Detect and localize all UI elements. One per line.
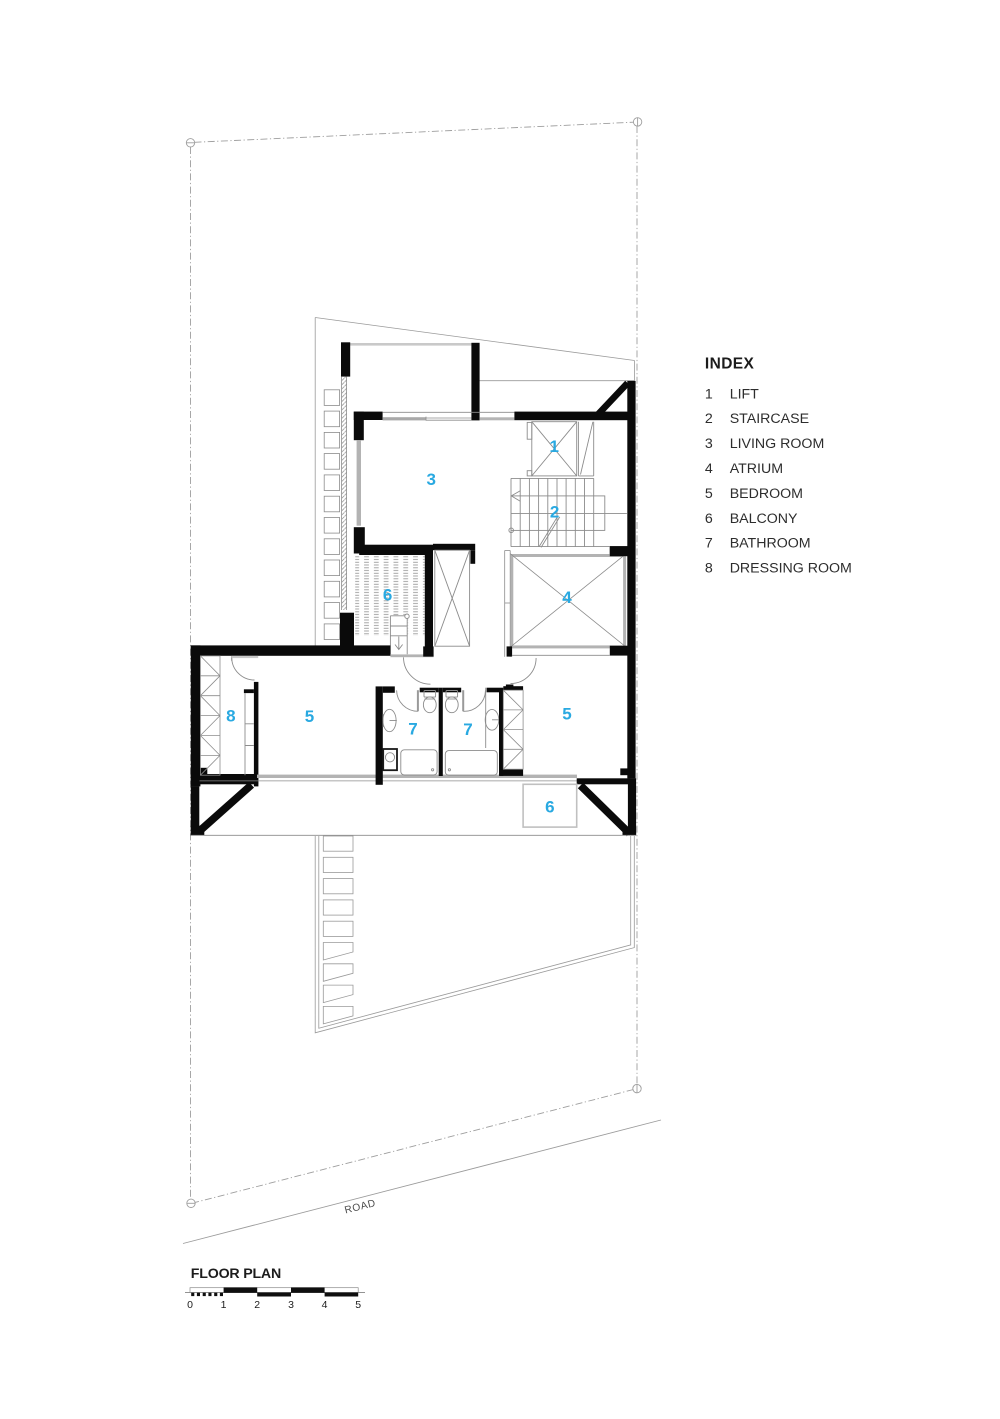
svg-text:6: 6 <box>383 586 392 605</box>
svg-text:4: 4 <box>322 1299 328 1311</box>
svg-text:1: 1 <box>549 437 558 456</box>
svg-text:7: 7 <box>705 536 713 552</box>
svg-text:7: 7 <box>408 719 417 738</box>
svg-text:1: 1 <box>221 1299 227 1311</box>
svg-text:2: 2 <box>705 411 713 427</box>
svg-text:5: 5 <box>355 1299 361 1311</box>
svg-text:5: 5 <box>562 705 571 724</box>
svg-text:FLOOR PLAN: FLOOR PLAN <box>191 1266 281 1282</box>
svg-text:6: 6 <box>705 511 713 527</box>
svg-text:3: 3 <box>705 436 713 452</box>
svg-text:7: 7 <box>463 720 472 739</box>
svg-text:0: 0 <box>187 1299 193 1311</box>
svg-text:STAIRCASE: STAIRCASE <box>730 411 809 427</box>
svg-text:5: 5 <box>305 707 314 726</box>
svg-text:INDEX: INDEX <box>705 356 755 373</box>
svg-text:1: 1 <box>705 386 713 402</box>
svg-text:2: 2 <box>550 503 559 522</box>
svg-text:3: 3 <box>288 1299 294 1311</box>
svg-text:4: 4 <box>705 461 713 477</box>
svg-text:5: 5 <box>705 486 713 502</box>
svg-text:BEDROOM: BEDROOM <box>730 486 803 502</box>
svg-text:ATRIUM: ATRIUM <box>730 461 783 477</box>
svg-text:2: 2 <box>254 1299 260 1311</box>
svg-text:BATHROOM: BATHROOM <box>730 536 811 552</box>
svg-text:8: 8 <box>705 561 713 577</box>
svg-text:BALCONY: BALCONY <box>730 511 798 527</box>
svg-text:8: 8 <box>226 707 235 726</box>
svg-text:4: 4 <box>562 588 572 607</box>
svg-text:DRESSING ROOM: DRESSING ROOM <box>730 561 852 577</box>
svg-text:LIVING ROOM: LIVING ROOM <box>730 436 825 452</box>
svg-text:LIFT: LIFT <box>730 386 759 402</box>
svg-text:3: 3 <box>426 470 435 489</box>
svg-text:6: 6 <box>545 797 554 816</box>
